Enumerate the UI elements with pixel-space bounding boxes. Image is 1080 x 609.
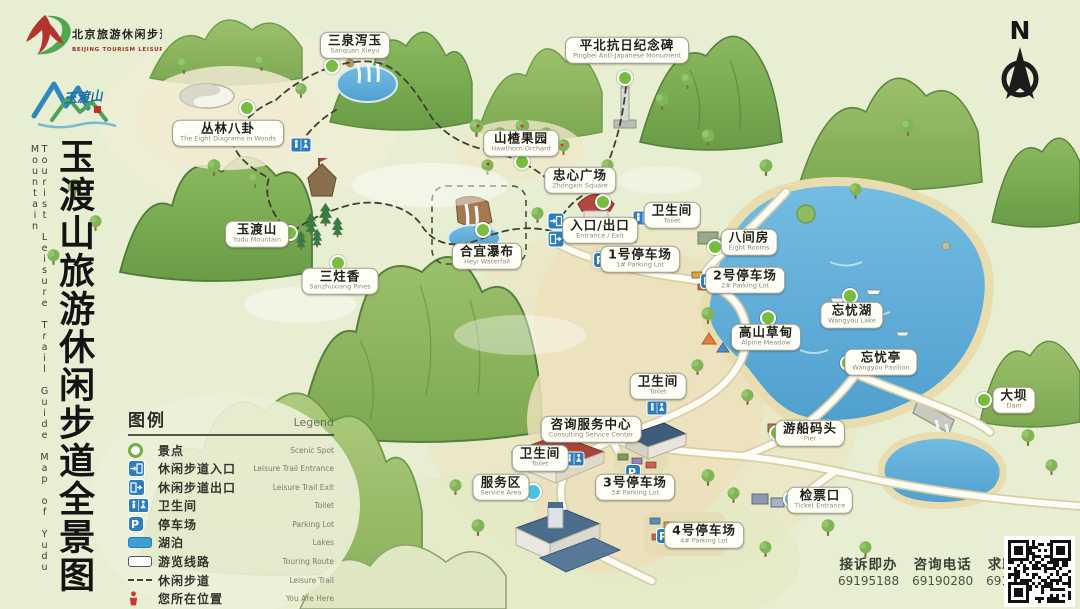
parking-icon: P bbox=[128, 516, 144, 532]
parking-lot-4-label: 4号停车场4# Parking Lot bbox=[664, 522, 744, 549]
scenic-dot-marker bbox=[475, 222, 491, 238]
parking-lot-1-label: 1号停车场1# Parking Lot bbox=[600, 246, 680, 273]
touring-route-swatch-icon bbox=[128, 556, 152, 567]
label-cn: 三泉泻玉 bbox=[328, 34, 382, 48]
scenic-spot-dot-icon bbox=[976, 392, 992, 408]
wangyou-pavilion-label: 忘忧亭Wangyou Pavilion bbox=[844, 349, 917, 376]
scenic-spot-dot-icon bbox=[617, 70, 633, 86]
toilet-icon bbox=[291, 138, 312, 153]
sanquan-xieyu-label: 三泉泻玉Sanquan Xieyu bbox=[320, 32, 390, 59]
leisure-trail-swatch-icon bbox=[128, 579, 152, 581]
yudu-mountain-label: 玉渡山Yudu Mountain bbox=[225, 221, 289, 248]
label-en: Sanzhuxiang Pines bbox=[310, 284, 371, 291]
scenic-spot-dot-icon bbox=[324, 58, 340, 74]
scenic-spot-icon bbox=[128, 443, 143, 458]
wangyou-lake-label: 忘忧湖Wangyou Lake bbox=[820, 302, 883, 329]
legend-item-lakes: 湖泊Lakes bbox=[128, 536, 334, 550]
label-en: 1# Parking Lot bbox=[608, 262, 672, 269]
toilet-icon bbox=[647, 401, 668, 416]
label-cn: 检票口 bbox=[795, 489, 845, 503]
legend-item-leisure-trail-exit: 休闲步道出口Leisure Trail Exit bbox=[128, 480, 334, 494]
label-cn: 忘忧亭 bbox=[852, 351, 909, 365]
label-cn: 玉渡山 bbox=[233, 223, 281, 237]
compass-n-label: N bbox=[994, 18, 1046, 43]
north-arrow-icon bbox=[994, 43, 1046, 109]
legend-item-en: Leisure Trail Exit bbox=[273, 483, 334, 492]
scenic-dot-marker bbox=[514, 154, 530, 170]
logo-water-swoosh bbox=[38, 123, 116, 128]
label-cn: 忠心广场 bbox=[552, 169, 608, 183]
legend-item-cn: 休闲步道入口 bbox=[158, 460, 236, 477]
label-cn: 1号停车场 bbox=[608, 248, 672, 262]
label-en: Pier bbox=[783, 436, 837, 443]
eight-rooms-label: 八间房Eight Rooms bbox=[721, 229, 778, 256]
legend-title-cn: 图例 bbox=[128, 406, 166, 431]
label-en: Heyi Waterfall bbox=[460, 259, 514, 266]
label-cn: 三炷香 bbox=[310, 270, 371, 284]
site-logo-name: 玉渡山 bbox=[63, 88, 105, 107]
trail-exit-icon bbox=[128, 479, 145, 496]
map-title-en: Tourist Leisure Trail Guide Map of Yudu … bbox=[30, 144, 49, 609]
legend-item-en: Parking Lot bbox=[292, 520, 334, 529]
label-cn: 忘忧湖 bbox=[828, 304, 875, 318]
scenic-dot-marker bbox=[617, 70, 633, 86]
trail-entrance-icon bbox=[128, 460, 145, 477]
label-en: 2# Parking Lot bbox=[713, 283, 777, 290]
map-title-cn: 玉渡山旅游休闲步道全景图 bbox=[54, 138, 92, 594]
scenic-spot-dot-icon bbox=[514, 154, 530, 170]
legend-item-en: Lakes bbox=[313, 538, 334, 547]
parking-lot-3-label: 3号停车场3# Parking Lot bbox=[595, 474, 675, 501]
legend-item-en: Toilet bbox=[314, 501, 334, 510]
legend-item-leisure-trail: 休闲步道Leisure Trail bbox=[128, 573, 334, 587]
lake-swatch-icon bbox=[128, 537, 152, 548]
label-en: Zhongxin Square bbox=[552, 183, 608, 190]
label-en: The Eight Diagrams in Woods bbox=[180, 136, 276, 143]
qr-code bbox=[1004, 536, 1075, 607]
scenic-dot-marker bbox=[595, 194, 611, 210]
label-en: 4# Parking Lot bbox=[672, 538, 736, 545]
svg-text:P: P bbox=[131, 518, 139, 531]
scenic-dot-marker bbox=[239, 100, 255, 116]
legend-item-you-are-here: 您所在位置You Are Here bbox=[128, 592, 334, 606]
heyi-waterfall-label: 合宜瀑布Heyi Waterfall bbox=[452, 243, 522, 270]
parking-lot-2-label: 2号停车场2# Parking Lot bbox=[705, 267, 785, 294]
legend-item-cn: 卫生间 bbox=[158, 497, 197, 514]
legend-item-en: You Are Here bbox=[286, 594, 334, 603]
label-en: Service Area bbox=[480, 490, 521, 497]
legend-item-en: Touring Route bbox=[283, 557, 335, 566]
ticket-entrance-label: 检票口Ticket Entrance bbox=[787, 487, 853, 514]
label-cn: 4号停车场 bbox=[672, 524, 736, 538]
label-en: Wangyou Lake bbox=[828, 318, 875, 325]
service-area-label: 服务区Service Area bbox=[472, 474, 529, 501]
scenic-spot-dot-icon bbox=[595, 194, 611, 210]
label-en: Hawthorn Orchard bbox=[491, 146, 551, 153]
legend-title-en: Legend bbox=[294, 416, 334, 429]
label-cn: 合宜瀑布 bbox=[460, 245, 514, 259]
label-cn: 3号停车场 bbox=[603, 476, 667, 490]
hotline-label: 咨询电话 bbox=[912, 553, 973, 573]
toilet-marker bbox=[647, 401, 668, 416]
legend-item-cn: 休闲步道出口 bbox=[158, 479, 236, 496]
label-cn: 山楂果园 bbox=[491, 132, 551, 146]
hotline-number: 69195188 bbox=[838, 574, 899, 588]
sanzhuxiang-pines-label: 三炷香Sanzhuxiang Pines bbox=[302, 268, 379, 295]
label-cn: 平北抗日纪念碑 bbox=[573, 39, 681, 53]
legend-header: 图例 Legend bbox=[128, 406, 334, 436]
scenic-dot-marker bbox=[976, 392, 992, 408]
label-en: Toilet bbox=[652, 218, 693, 225]
label-cn: 游船码头 bbox=[783, 422, 837, 436]
beijing-tourism-leisure-trail-logo: 北京旅游休闲步道 BEIJING TOURISM LEISURE TRAIL bbox=[12, 8, 162, 70]
map-poster: 北京旅游休闲步道 BEIJING TOURISM LEISURE TRAIL 玉… bbox=[0, 0, 1080, 609]
label-en: Sanquan Xieyu bbox=[328, 48, 382, 55]
hotline-item-0: 接诉即办69195188 bbox=[838, 553, 899, 588]
label-en: Consulting Service Center bbox=[549, 432, 634, 439]
scenic-spot-dot-icon bbox=[475, 222, 491, 238]
consulting-service-center-label: 咨询服务中心Consulting Service Center bbox=[541, 416, 642, 443]
legend-item-cn: 湖泊 bbox=[158, 534, 184, 551]
compass-north: N bbox=[994, 18, 1046, 113]
label-en: Pingbei Anti-Japanese Monument bbox=[573, 53, 681, 60]
label-en: Eight Rooms bbox=[729, 245, 770, 252]
scenic-dot-marker bbox=[324, 58, 340, 74]
zhongxin-square-label: 忠心广场Zhongxin Square bbox=[544, 167, 616, 194]
label-en: Dam bbox=[1000, 403, 1027, 410]
alpine-meadow-label: 高山草甸Alpine Meadow bbox=[731, 324, 801, 351]
label-en: Entrance / Exit bbox=[570, 233, 630, 240]
label-cn: 咨询服务中心 bbox=[549, 418, 634, 432]
label-en: Toilet bbox=[638, 389, 679, 396]
legend: 图例 Legend 景点Scenic Spot休闲步道入口Leisure Tra… bbox=[128, 406, 334, 609]
legend-item-en: Scenic Spot bbox=[290, 446, 334, 455]
org-logo-cn: 北京旅游休闲步道 bbox=[72, 27, 162, 41]
legend-item-cn: 休闲步道 bbox=[158, 572, 210, 589]
label-en: Alpine Meadow bbox=[739, 340, 793, 347]
hotline-label: 接诉即办 bbox=[838, 553, 899, 573]
label-en: 3# Parking Lot bbox=[603, 490, 667, 497]
label-en: Ticket Entrance bbox=[795, 503, 845, 510]
toilet-north-label: 卫生间Toilet bbox=[644, 202, 701, 229]
label-en: Wangyou Pavilion bbox=[852, 365, 909, 372]
entrance-exit-label: 入口/出口Entrance / Exit bbox=[562, 217, 638, 244]
toilet-mid-label: 卫生间Toilet bbox=[630, 373, 687, 400]
scenic-spot-dot-icon bbox=[239, 100, 255, 116]
org-logo-en: BEIJING TOURISM LEISURE TRAIL bbox=[72, 47, 162, 53]
label-cn: 卫生间 bbox=[520, 447, 561, 461]
hotline-number: 69190280 bbox=[912, 574, 973, 588]
label-en: Toilet bbox=[520, 461, 561, 468]
legend-item-toilet: 卫生间Toilet bbox=[128, 499, 334, 513]
label-cn: 丛林八卦 bbox=[180, 122, 276, 136]
legend-item-cn: 您所在位置 bbox=[158, 590, 223, 607]
legend-item-en: Leisure Trail bbox=[289, 576, 334, 585]
toilet-south-label: 卫生间Toilet bbox=[512, 445, 569, 472]
legend-item-cn: 游览线路 bbox=[158, 553, 210, 570]
label-cn: 大坝 bbox=[1000, 389, 1027, 403]
label-cn: 服务区 bbox=[480, 476, 521, 490]
label-cn: 2号停车场 bbox=[713, 269, 777, 283]
label-cn: 高山草甸 bbox=[739, 326, 793, 340]
label-cn: 卫生间 bbox=[652, 204, 693, 218]
toilet-icon bbox=[128, 498, 149, 513]
hawthorn-orchard-label: 山楂果园Hawthorn Orchard bbox=[483, 130, 559, 157]
legend-rows: 景点Scenic Spot休闲步道入口Leisure Trail Entranc… bbox=[128, 443, 334, 606]
dam-label: 大坝Dam bbox=[992, 387, 1035, 414]
legend-item-en: Leisure Trail Entrance bbox=[253, 464, 334, 473]
hotline-item-1: 咨询电话69190280 bbox=[912, 553, 973, 588]
label-cn: 卫生间 bbox=[638, 375, 679, 389]
legend-item-scenic-spot: 景点Scenic Spot bbox=[128, 443, 334, 457]
legend-item-cn: 停车场 bbox=[158, 516, 197, 533]
pier-label: 游船码头Pier bbox=[775, 420, 845, 447]
label-en: Yudu Mountain bbox=[233, 237, 281, 244]
toilet-marker bbox=[291, 138, 312, 153]
you-are-here-icon bbox=[128, 591, 139, 606]
legend-item-parking-lot: P停车场Parking Lot bbox=[128, 517, 334, 531]
pingbei-monument-label: 平北抗日纪念碑Pingbei Anti-Japanese Monument bbox=[565, 37, 689, 64]
label-cn: 入口/出口 bbox=[570, 219, 630, 233]
label-cn: 八间房 bbox=[729, 231, 770, 245]
conglin-bagua-label: 丛林八卦The Eight Diagrams in Woods bbox=[172, 120, 284, 147]
yudu-mountain-logo: 玉渡山 bbox=[28, 70, 128, 136]
legend-item-leisure-trail-entrance: 休闲步道入口Leisure Trail Entrance bbox=[128, 462, 334, 476]
legend-item-cn: 景点 bbox=[158, 442, 184, 459]
logo-seal bbox=[94, 106, 101, 113]
legend-item-touring-route: 游览线路Touring Route bbox=[128, 555, 334, 569]
